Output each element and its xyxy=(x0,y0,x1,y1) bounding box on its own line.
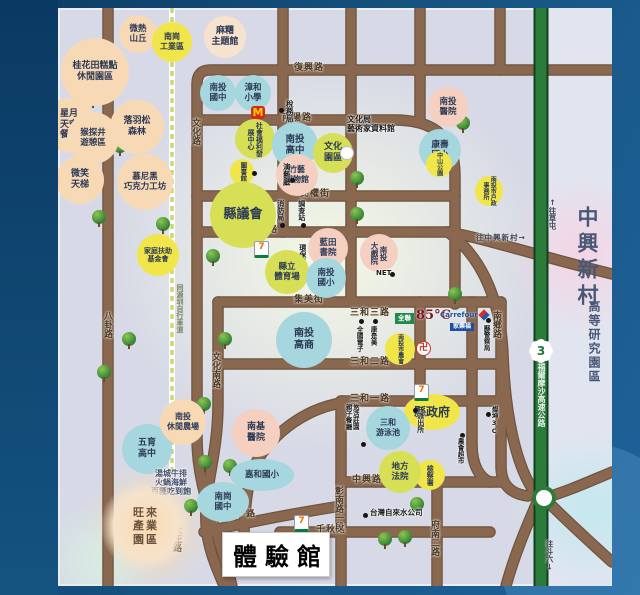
freeway-3-shield: 3 xyxy=(532,342,550,360)
poi-nanji-hospital: 南基 醫院 xyxy=(232,409,280,457)
road-label-fuxing: 復興路 xyxy=(294,60,324,73)
kids-restaurant-label: 悠活莊園 親子餐廳 xyxy=(344,404,358,430)
poi-sunny-hills: 微熱 山丘 xyxy=(119,15,157,53)
poi-nangang-industrial: 南崗 工業區 xyxy=(152,22,192,62)
tree-icon xyxy=(378,532,392,546)
road-label-zhongxing: 中興路 xyxy=(352,472,382,485)
culture-archive-label: 文化局 藝術家資料館 xyxy=(347,116,395,134)
mcdonalds-icon: M xyxy=(251,106,265,119)
poi-munich-chocolate: 慕尼黑 巧克力工坊 xyxy=(117,154,173,210)
fire-bureau-label: 消防局 xyxy=(276,200,284,221)
tree-icon xyxy=(350,171,364,185)
arts-hall-dot xyxy=(290,178,295,183)
direction-to-zhongxing: 往中興新村→ xyxy=(476,232,526,243)
poi-district-court: 地方 法院 xyxy=(379,451,421,493)
poi-grand-theater: 南投 大戲院 xyxy=(360,234,398,272)
road-label-wenhua: 文化路 xyxy=(189,118,202,145)
poi-sanhe-pool: 三和 游泳池 xyxy=(366,406,410,450)
poi-household-office: 南投市戶政事務所 xyxy=(475,176,503,206)
tree-icon xyxy=(448,287,462,301)
culture-archive-dot xyxy=(340,146,354,160)
library-dot xyxy=(252,171,257,176)
seven-eleven-icon: 7 xyxy=(294,515,309,532)
investigation-label: 調查站 xyxy=(297,200,305,221)
poi-nangang-jhs: 南崗 國中 xyxy=(197,482,249,522)
police-hq-dot xyxy=(486,318,491,323)
road-label-sanhe3: 三和三路 xyxy=(350,305,390,318)
carrefour-wordmark: Carrefour xyxy=(440,311,478,319)
poi-nantou-hospital: 南投 醫院 xyxy=(428,87,468,127)
temple-icon: 卍 xyxy=(416,341,431,356)
road-label-funan2: 府南二路 xyxy=(428,520,441,556)
road-label-bagua: 八卦路 xyxy=(101,311,114,338)
poi-nantou-vhs: 南投 高商 xyxy=(276,312,332,368)
allelec-dot xyxy=(359,319,364,324)
area-zhongxing-village: 中興新村 xyxy=(572,206,602,310)
tree-icon xyxy=(206,249,220,263)
direction-to-douliu: 往斗六↓ xyxy=(544,540,555,572)
fire-bureau-dot xyxy=(280,223,285,228)
farmers-market-label: 農會超市 xyxy=(456,438,463,464)
bikeway-label: 同源圳自行車道 xyxy=(175,284,185,333)
tree-icon xyxy=(198,455,212,469)
tax-bureau-dot xyxy=(279,108,284,113)
pxmart-badge: 全聯 xyxy=(395,313,414,324)
seven-eleven-icon: 7 xyxy=(254,241,269,258)
poi-county-council: 縣議會 xyxy=(210,182,276,248)
seven-eleven-icon: 7 xyxy=(414,384,429,401)
poi-family-fund: 家庭扶助 基金會 xyxy=(137,234,179,276)
net-dot xyxy=(390,272,395,277)
police-station-label: 派出所 xyxy=(416,412,424,433)
cosmed-label: 康是美 xyxy=(369,326,376,346)
police-hq-label: 縣警察局 xyxy=(482,325,489,351)
poi-farmers-assoc: 南投市農會 xyxy=(385,333,415,365)
road-label-changnan: 彰南路一段 xyxy=(332,486,345,531)
direction-to-caotun: ↑往草屯 xyxy=(547,198,558,230)
freeway-number: 3 xyxy=(537,344,545,358)
interchange-icon xyxy=(532,486,556,510)
poi-mochi-museum: 麻糬 主題館 xyxy=(204,16,246,58)
arts-hall-label: 演藝廳 xyxy=(282,163,290,186)
cosmed-dot xyxy=(373,319,378,324)
page-frame: 復興路 南陽路 民權街 民族路 集美街 三和三路 三和二路 三和一路 中興路 千… xyxy=(0,0,640,595)
water-company-label: 台灣自來水公司 xyxy=(370,509,423,517)
tree-icon xyxy=(92,210,106,224)
tax-bureau-label: 稅務局 xyxy=(285,100,293,123)
kids-restaurant-dot xyxy=(361,442,366,447)
tree-icon xyxy=(122,332,136,346)
road-label-sanhe1: 三和一路 xyxy=(350,391,390,404)
road-label-sanhe2: 三和二路 xyxy=(350,354,390,367)
experience-hall-plate: 體驗館 xyxy=(222,532,330,577)
poi-smile-ladder: 微笑 天梯 xyxy=(58,156,104,204)
poi-leisure-farm: 南投 休閒農場 xyxy=(160,399,206,445)
poi-county-government: 縣政府 xyxy=(404,394,460,430)
tsannkuen-label: 燦坤3C xyxy=(490,406,497,435)
poi-nantou-es: 南投 國小 xyxy=(306,258,346,298)
road-label-wenhuanan: 文化南路 xyxy=(209,352,222,388)
road-label-nanxiang: 南鄉路 xyxy=(490,311,503,338)
carrefour-cn-strip: 家樂福 xyxy=(450,323,474,331)
poi-zhongshan-park: 中山公園 xyxy=(426,151,452,177)
tree-icon xyxy=(156,217,170,231)
frame-left-strip xyxy=(0,0,58,595)
carrefour-logo: Carrefour xyxy=(440,311,488,319)
poi-stadium: 縣立 體育場 xyxy=(265,250,309,294)
poi-nantou-jhs: 南投 國中 xyxy=(200,75,236,111)
freeway-name-label: 福爾摩沙高速公路 xyxy=(536,363,547,427)
poi-guihuatian: 桂花田糕點 休閒園區 xyxy=(61,38,129,106)
area-research-park: 高等研究園區 xyxy=(586,300,603,384)
poi-luoyusong: 落羽松 森林 xyxy=(110,100,164,154)
water-company-dot xyxy=(363,513,368,518)
tree-icon xyxy=(398,530,412,544)
investigation-dot xyxy=(301,223,306,228)
tree-icon xyxy=(97,365,111,379)
poi-wanglai-park: 旺來 產業 園區 xyxy=(100,480,192,572)
allelec-label: 全國電子 xyxy=(355,326,362,352)
tree-icon xyxy=(350,207,364,221)
tree-icon xyxy=(218,332,232,346)
poi-social-welfare: 社會福利發展中心 xyxy=(235,119,275,159)
map-canvas: 復興路 南陽路 民權街 民族路 集美街 三和三路 三和二路 三和一路 中興路 千… xyxy=(58,8,612,586)
